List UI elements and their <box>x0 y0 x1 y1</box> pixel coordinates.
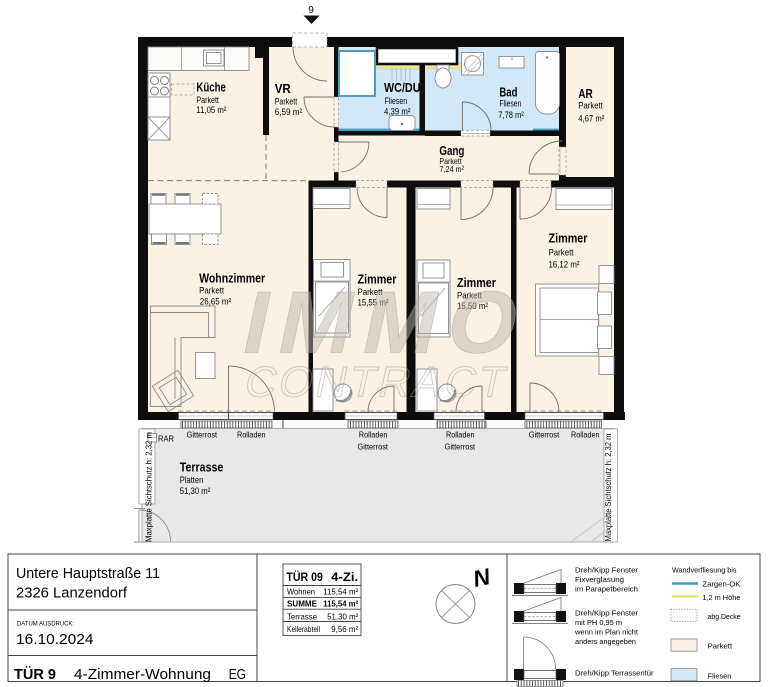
svg-text:11,05 m²: 11,05 m² <box>196 105 226 115</box>
svg-text:Platten: Platten <box>180 475 204 485</box>
svg-text:Rolladen: Rolladen <box>237 430 266 440</box>
svg-text:Wandverfliesung bis: Wandverfliesung bis <box>672 566 737 575</box>
svg-text:1,2 m Höhe: 1,2 m Höhe <box>702 593 740 602</box>
svg-text:6,59 m²: 6,59 m² <box>275 107 303 117</box>
svg-text:Parkett: Parkett <box>708 642 733 651</box>
svg-text:DATUM AUSDRUCK:: DATUM AUSDRUCK: <box>17 621 74 628</box>
svg-text:abg.Decke: abg.Decke <box>708 612 741 621</box>
svg-text:Parkett: Parkett <box>578 101 603 111</box>
svg-text:CONTRACT: CONTRACT <box>241 359 514 406</box>
svg-text:51,30 m²: 51,30 m² <box>327 611 358 621</box>
svg-text:Terrasse: Terrasse <box>180 461 224 475</box>
svg-text:im Parapetbereich: im Parapetbereich <box>575 585 638 594</box>
svg-text:Terrasse: Terrasse <box>287 611 317 621</box>
svg-text:Parkett: Parkett <box>196 95 219 105</box>
svg-text:Parkett: Parkett <box>549 248 574 258</box>
svg-text:Maxplatte Sichtschutz h: 2,32: Maxplatte Sichtschutz h: 2,32 m <box>144 432 154 542</box>
svg-text:4-Zimmer-Wohnung: 4-Zimmer-Wohnung <box>74 666 211 683</box>
svg-text:Rolladen: Rolladen <box>359 430 388 440</box>
svg-text:Fixverglasung: Fixverglasung <box>575 575 624 584</box>
svg-text:4,39 m²: 4,39 m² <box>384 107 411 117</box>
svg-text:Rolladen: Rolladen <box>571 430 600 440</box>
svg-text:Fliesen: Fliesen <box>385 96 408 106</box>
svg-text:Fliesen: Fliesen <box>708 671 732 680</box>
svg-text:4-Zi.: 4-Zi. <box>331 570 358 584</box>
svg-text:7,78 m²: 7,78 m² <box>498 110 524 120</box>
svg-text:Dreh/Kipp Fenster: Dreh/Kipp Fenster <box>575 609 639 618</box>
svg-text:Kellerabteil: Kellerabteil <box>287 624 320 634</box>
svg-text:RAR: RAR <box>158 434 174 444</box>
svg-text:16,12 m²: 16,12 m² <box>549 260 580 270</box>
svg-text:TÜR 09: TÜR 09 <box>286 569 323 584</box>
svg-text:WC/DU: WC/DU <box>384 81 421 95</box>
svg-text:Dreh/Kipp Fenster: Dreh/Kipp Fenster <box>575 566 639 575</box>
svg-text:115,54 m²: 115,54 m² <box>323 587 358 597</box>
svg-text:7,24 m²: 7,24 m² <box>439 164 464 174</box>
svg-text:Rolladen: Rolladen <box>446 430 475 440</box>
svg-text:Küche: Küche <box>196 81 226 95</box>
svg-text:9: 9 <box>308 5 314 16</box>
svg-text:Gitterrost: Gitterrost <box>529 430 560 440</box>
svg-text:Parkett: Parkett <box>199 285 224 295</box>
svg-text:Dreh/Kipp Terrassentür: Dreh/Kipp Terrassentür <box>575 669 654 678</box>
svg-text:Zimmer: Zimmer <box>549 232 588 246</box>
svg-text:Gitterrost: Gitterrost <box>187 430 218 440</box>
svg-text:TÜR 9: TÜR 9 <box>14 666 56 683</box>
svg-text:anders angegeben: anders angegeben <box>575 637 636 646</box>
svg-text:115,54 m²: 115,54 m² <box>323 599 358 609</box>
svg-text:wenn im Plan nicht: wenn im Plan nicht <box>574 628 639 637</box>
svg-text:EG: EG <box>229 666 247 683</box>
svg-text:51,30 m²: 51,30 m² <box>180 486 211 496</box>
svg-text:4,67 m²: 4,67 m² <box>578 113 604 123</box>
svg-text:16.10.2024: 16.10.2024 <box>16 631 94 648</box>
svg-text:Bad: Bad <box>499 85 517 99</box>
svg-text:Parkett: Parkett <box>275 97 298 107</box>
svg-text:2326 Lanzendorf: 2326 Lanzendorf <box>16 585 128 602</box>
svg-text:Fliesen: Fliesen <box>499 99 521 109</box>
svg-text:Gitterrost: Gitterrost <box>445 442 476 452</box>
svg-text:IMMO: IMMO <box>235 272 539 371</box>
svg-text:SUMME: SUMME <box>287 599 317 609</box>
svg-text:mit PH 0,95 m: mit PH 0,95 m <box>575 618 622 627</box>
svg-text:Gitterrost: Gitterrost <box>358 442 389 452</box>
svg-text:VR: VR <box>275 82 291 96</box>
svg-text:Untere Hauptstraße 11: Untere Hauptstraße 11 <box>16 565 160 582</box>
svg-text:AR: AR <box>578 87 593 101</box>
svg-text:Zargen-OK: Zargen-OK <box>702 580 740 589</box>
svg-text:Wohnen: Wohnen <box>287 587 315 597</box>
svg-text:26,65 m²: 26,65 m² <box>200 297 231 307</box>
svg-text:9,56 m²: 9,56 m² <box>331 624 358 634</box>
svg-text:Maxplatte Sichtschutz h: 2,32: Maxplatte Sichtschutz h: 2,32 m <box>603 433 613 541</box>
